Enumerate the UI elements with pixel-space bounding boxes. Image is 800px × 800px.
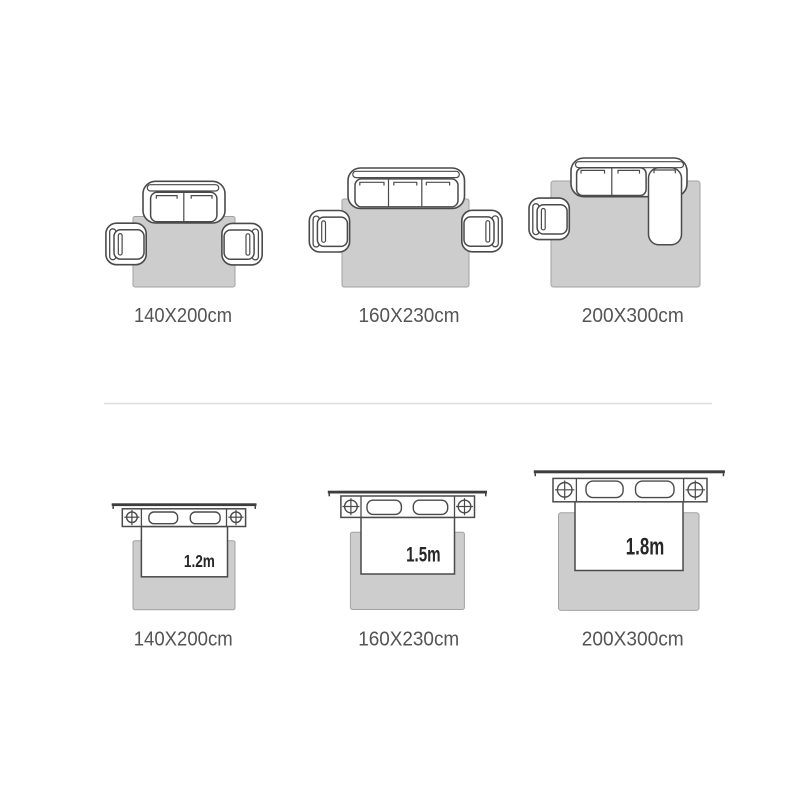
svg-text:160X230cm: 160X230cm bbox=[358, 628, 459, 651]
svg-text:1.2m: 1.2m bbox=[184, 551, 215, 571]
svg-text:200X300cm: 200X300cm bbox=[582, 628, 684, 651]
svg-text:140X200cm: 140X200cm bbox=[134, 627, 233, 650]
svg-text:1.5m: 1.5m bbox=[406, 544, 441, 567]
svg-text:200X300cm: 200X300cm bbox=[582, 304, 684, 327]
svg-text:1.8m: 1.8m bbox=[626, 534, 665, 561]
svg-text:160X230cm: 160X230cm bbox=[359, 304, 460, 327]
svg-text:140X200cm: 140X200cm bbox=[134, 304, 232, 327]
